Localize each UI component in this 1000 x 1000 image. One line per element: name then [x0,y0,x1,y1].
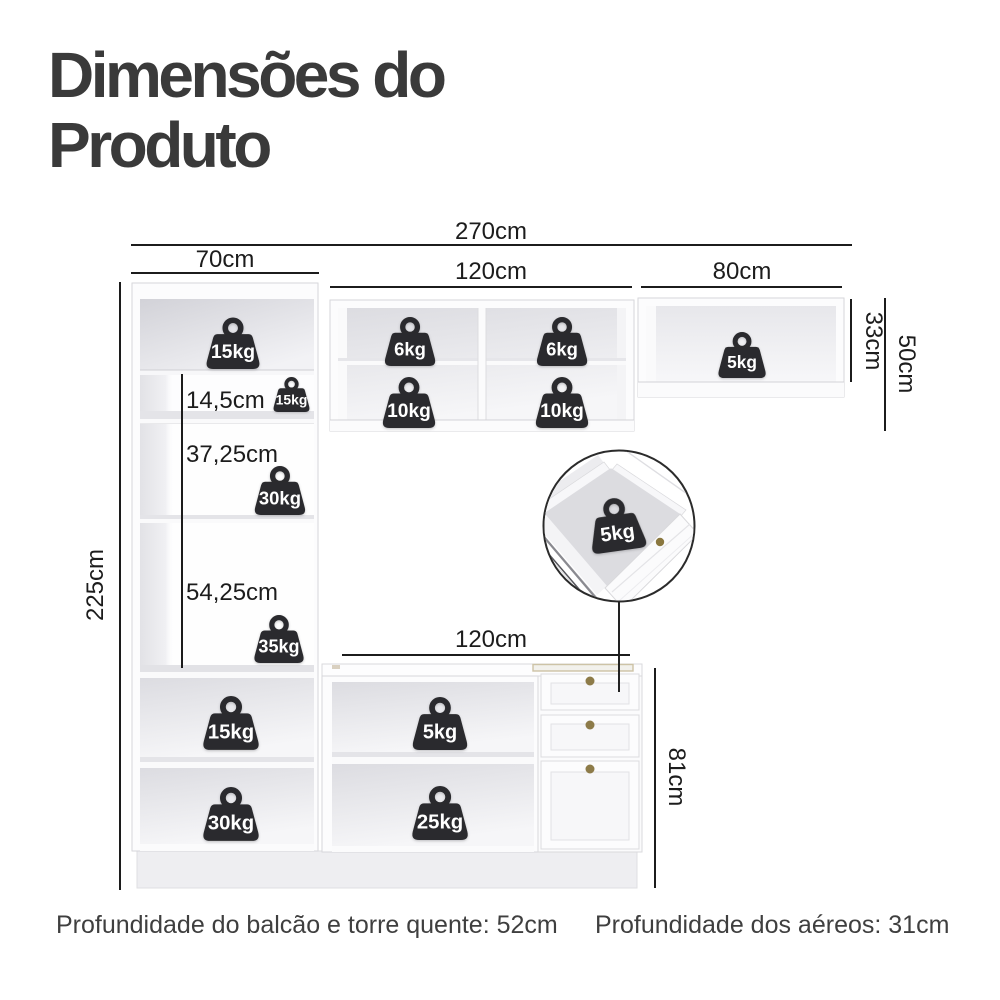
svg-text:Dimensões do: Dimensões do [48,39,445,111]
svg-text:70cm: 70cm [196,246,255,273]
svg-text:50cm: 50cm [893,335,920,394]
svg-text:6kg: 6kg [546,338,578,359]
svg-text:30kg: 30kg [208,812,254,834]
svg-text:270cm: 270cm [455,218,527,245]
svg-text:80cm: 80cm [713,258,772,285]
svg-text:Profundidade dos aéreos: 31cm: Profundidade dos aéreos: 31cm [595,911,949,939]
svg-text:Produto: Produto [48,109,270,181]
svg-text:120cm: 120cm [455,626,527,653]
svg-text:Profundidade do balcão e torre: Profundidade do balcão e torre quente: 5… [56,911,558,939]
svg-text:54,25cm: 54,25cm [186,579,278,606]
svg-text:37,25cm: 37,25cm [186,441,278,468]
svg-text:225cm: 225cm [82,549,109,621]
svg-text:81cm: 81cm [663,748,690,807]
svg-text:35kg: 35kg [258,637,299,657]
svg-text:5kg: 5kg [727,352,757,372]
svg-text:15kg: 15kg [208,721,254,743]
svg-text:15kg: 15kg [211,341,255,363]
svg-text:10kg: 10kg [387,401,431,422]
svg-text:30kg: 30kg [259,487,301,508]
svg-text:15kg: 15kg [276,391,308,407]
svg-text:14,5cm: 14,5cm [186,387,265,414]
svg-text:25kg: 25kg [417,811,463,833]
svg-text:10kg: 10kg [540,401,584,422]
svg-text:6kg: 6kg [394,338,426,359]
svg-text:5kg: 5kg [423,722,457,744]
svg-text:120cm: 120cm [455,258,527,285]
svg-text:33cm: 33cm [860,312,887,371]
